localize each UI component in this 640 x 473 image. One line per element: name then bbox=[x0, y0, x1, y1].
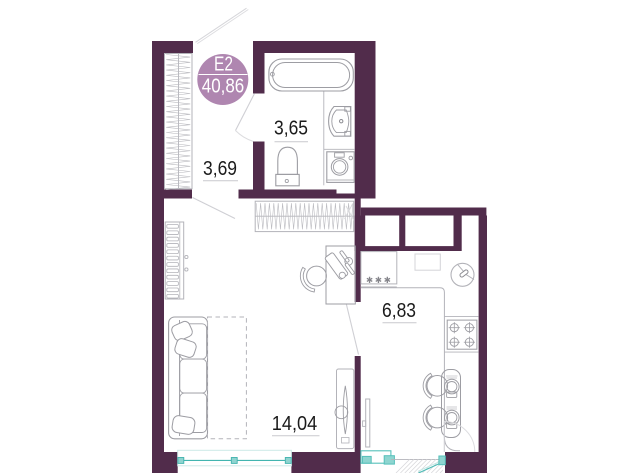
svg-text:3,65: 3,65 bbox=[274, 116, 308, 139]
svg-text:E2: E2 bbox=[214, 54, 233, 76]
svg-text:40,86: 40,86 bbox=[202, 76, 245, 98]
svg-text:6,83: 6,83 bbox=[382, 299, 416, 322]
svg-text:3,69: 3,69 bbox=[203, 157, 237, 180]
svg-text:✱: ✱ bbox=[384, 275, 391, 285]
svg-text:✱: ✱ bbox=[366, 275, 373, 285]
svg-text:✱: ✱ bbox=[375, 275, 382, 285]
svg-text:14,04: 14,04 bbox=[272, 412, 318, 435]
